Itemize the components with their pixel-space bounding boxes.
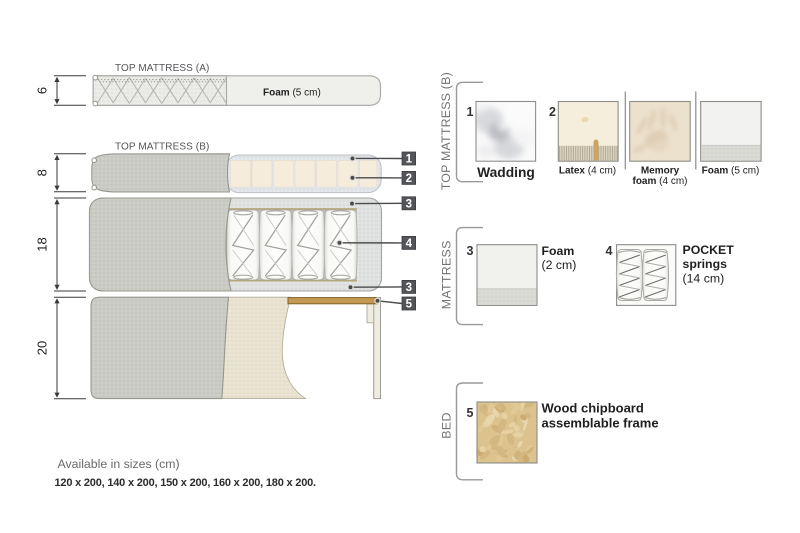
svg-text:5: 5 [406, 299, 413, 311]
svg-text:Available in sizes (cm): Available in sizes (cm) [58, 457, 180, 471]
svg-text:8: 8 [35, 169, 50, 176]
svg-text:18: 18 [35, 237, 50, 251]
svg-text:TOP MATTRESS (A): TOP MATTRESS (A) [115, 63, 209, 74]
svg-text:Foam: Foam [542, 244, 575, 258]
svg-text:3: 3 [406, 282, 412, 294]
svg-text:4: 4 [406, 238, 413, 250]
svg-text:MATTRESS: MATTRESS [439, 240, 453, 309]
svg-text:2: 2 [549, 105, 556, 119]
svg-text:20: 20 [35, 341, 50, 355]
svg-text:4: 4 [606, 244, 613, 258]
svg-text:2: 2 [406, 173, 412, 185]
svg-text:POCKET: POCKET [683, 243, 735, 257]
svg-text:Latex (4 cm): Latex (4 cm) [559, 166, 616, 177]
svg-text:5: 5 [467, 406, 474, 420]
svg-text:foam (4 cm): foam (4 cm) [632, 176, 687, 187]
svg-text:TOP MATTRESS (B): TOP MATTRESS (B) [439, 72, 453, 190]
svg-text:assemblable frame: assemblable frame [542, 416, 659, 431]
svg-text:(2 cm): (2 cm) [542, 258, 577, 272]
svg-text:1: 1 [467, 105, 474, 119]
svg-text:6: 6 [35, 87, 50, 94]
svg-text:Foam (5 cm): Foam (5 cm) [263, 87, 321, 98]
svg-text:springs: springs [683, 257, 728, 271]
svg-text:(14 cm): (14 cm) [683, 272, 725, 286]
svg-text:1: 1 [406, 154, 413, 166]
svg-text:Wood chipboard: Wood chipboard [542, 401, 644, 416]
svg-text:Wadding: Wadding [477, 165, 535, 180]
svg-text:3: 3 [406, 198, 412, 210]
svg-text:Foam (5 cm): Foam (5 cm) [702, 166, 760, 177]
svg-text:3: 3 [467, 244, 474, 258]
svg-text:TOP MATTRESS (B): TOP MATTRESS (B) [115, 142, 209, 153]
svg-text:120 x 200, 140 x 200, 150 x 20: 120 x 200, 140 x 200, 150 x 200, 160 x 2… [55, 477, 317, 489]
svg-text:BED: BED [439, 412, 453, 438]
